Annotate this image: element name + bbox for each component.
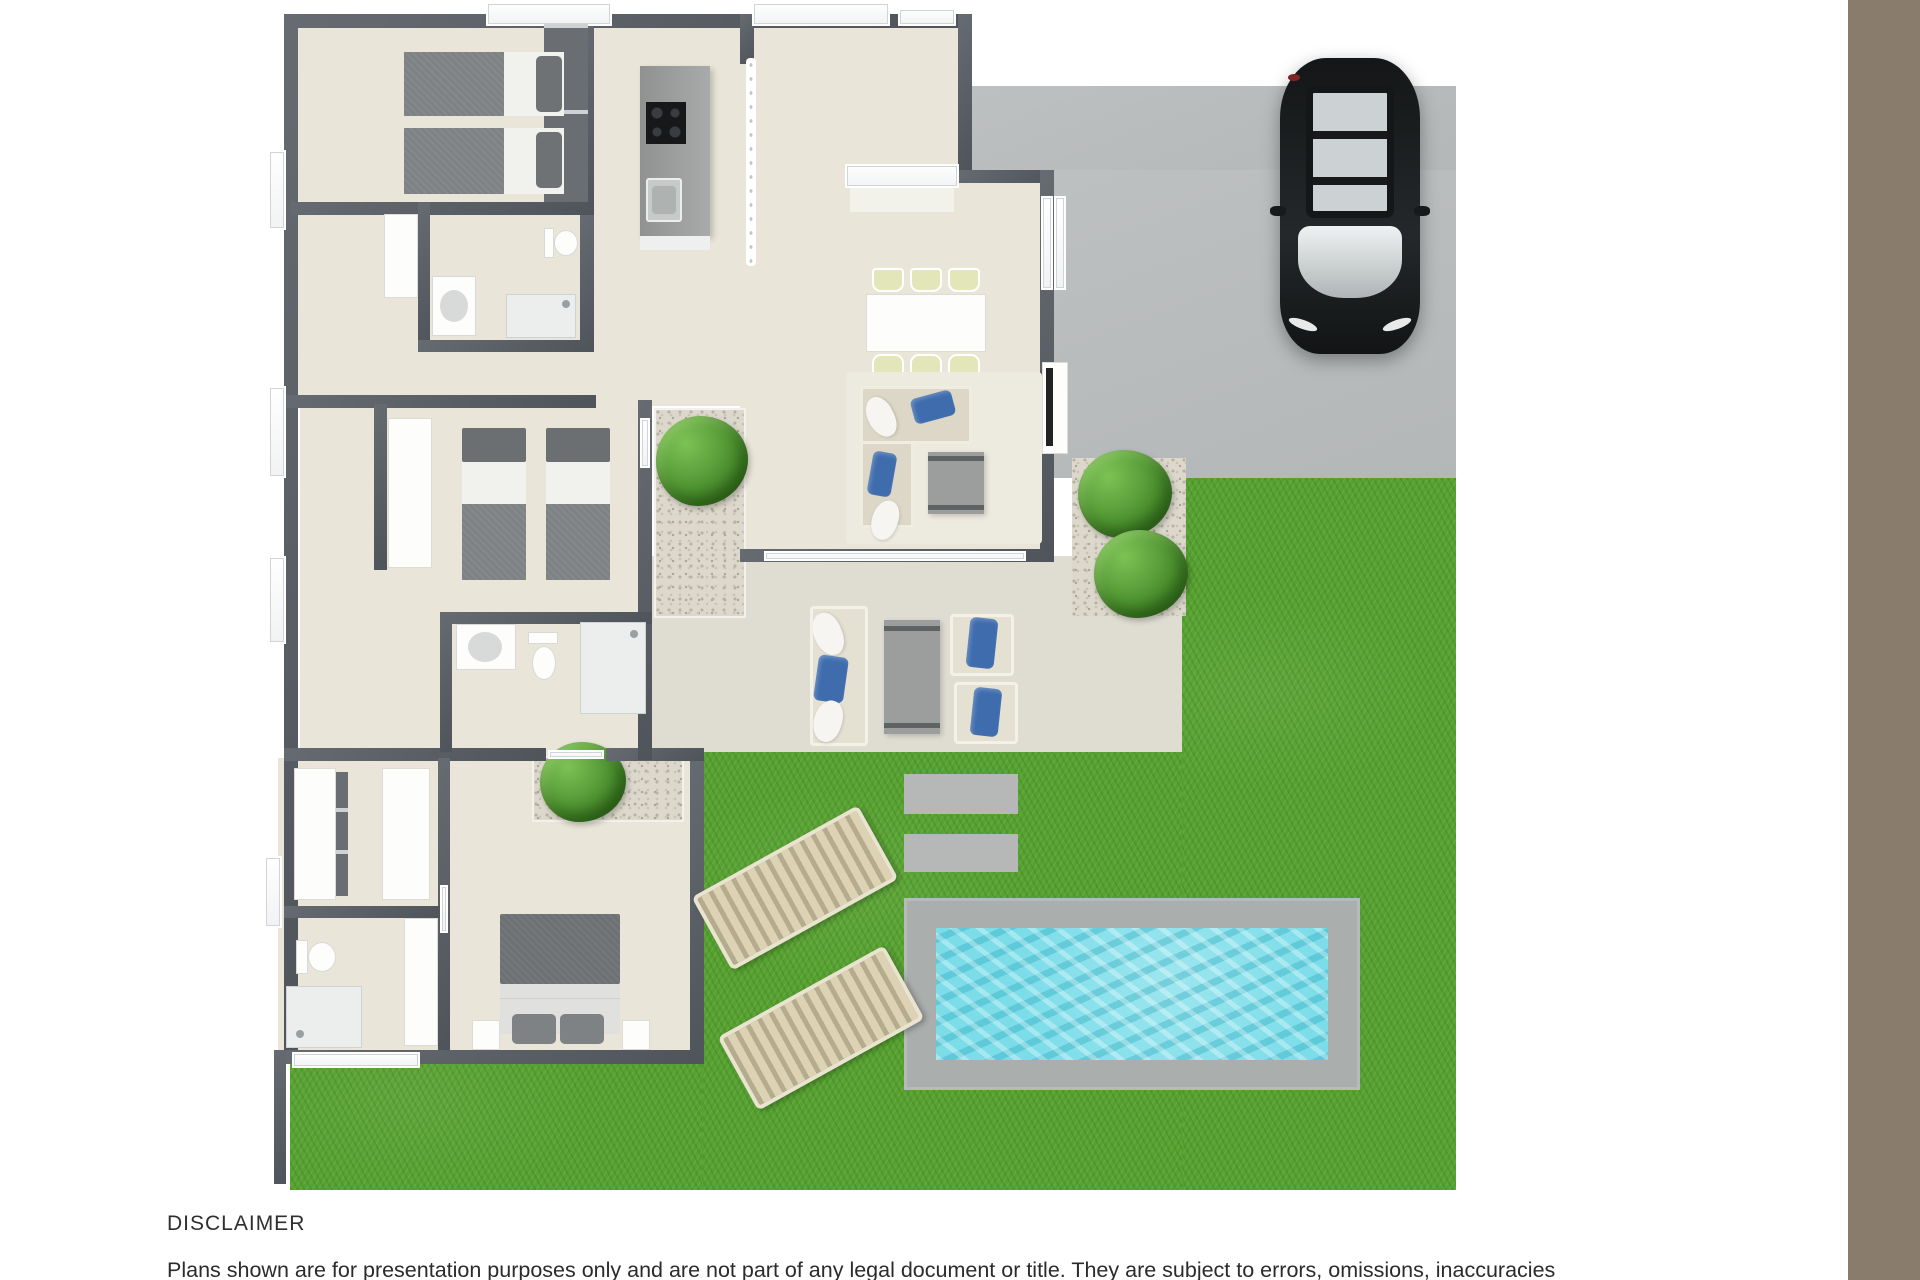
bed4-headboard bbox=[546, 428, 610, 462]
window-left-2 bbox=[268, 386, 286, 478]
outdoor-armchair2-cushion bbox=[970, 687, 1003, 738]
window-left-1 bbox=[268, 150, 286, 230]
bed4-sheet bbox=[546, 462, 610, 504]
window-top-2 bbox=[752, 2, 890, 26]
robe-wardrobe-1 bbox=[294, 768, 336, 900]
master-bed-cushion-1 bbox=[512, 1014, 556, 1044]
car-taillight-left bbox=[1288, 74, 1300, 81]
window-master-bottom bbox=[292, 1052, 420, 1068]
door-master-divider bbox=[440, 885, 448, 933]
bath1-basin bbox=[440, 290, 468, 322]
wall-robe-bath-divider bbox=[284, 906, 440, 918]
wall-bath1-bottom bbox=[418, 340, 594, 352]
sliding-door-patio bbox=[764, 551, 1026, 561]
outdoor-armchair1-cushion bbox=[965, 617, 998, 670]
robe-shelves bbox=[336, 772, 348, 896]
dining-table bbox=[866, 294, 986, 352]
paving-pad-2 bbox=[904, 834, 1018, 872]
disclaimer-title: DISCLAIMER bbox=[167, 1212, 305, 1236]
door-hall-master bbox=[548, 750, 604, 759]
bed3-headboard bbox=[462, 428, 526, 462]
kitchen-sink-basin bbox=[652, 186, 676, 214]
coffee-table-edge-top bbox=[928, 456, 984, 461]
pool-water bbox=[936, 928, 1328, 1060]
tv bbox=[1046, 368, 1053, 446]
hall-closet bbox=[384, 214, 418, 298]
car-roof-glass bbox=[1306, 86, 1394, 218]
window-dining-sill bbox=[850, 188, 954, 212]
floor-plan-page: DISCLAIMER Plans shown are for presentat… bbox=[0, 0, 1920, 1280]
bath2-toilet-bowl bbox=[532, 646, 556, 680]
cooktop bbox=[646, 102, 686, 144]
ensuite-toilet-tank bbox=[296, 940, 308, 974]
bath2-toilet-tank bbox=[528, 632, 558, 644]
dining-chair-3 bbox=[948, 268, 980, 292]
outdoor-table bbox=[884, 620, 940, 734]
lawn-bottom-left bbox=[290, 1062, 702, 1190]
outdoor-table-edge-bottom bbox=[884, 723, 940, 728]
bedroom2-robe-interior bbox=[388, 418, 432, 568]
window-sill-east bbox=[1054, 196, 1066, 290]
wall-wingA-bottom bbox=[284, 395, 596, 408]
bed3-blanket bbox=[462, 504, 526, 580]
bath2-shower-head bbox=[630, 630, 638, 638]
nightstand-left bbox=[472, 1020, 500, 1050]
bed2-pillow bbox=[536, 132, 562, 188]
car-windshield bbox=[1298, 226, 1402, 298]
car bbox=[1280, 58, 1420, 354]
bed2-blanket bbox=[404, 128, 504, 194]
bed3-sheet bbox=[462, 462, 526, 504]
outdoor-cushion-blue-1 bbox=[813, 654, 849, 704]
dining-chair-2 bbox=[910, 268, 942, 292]
bath2-basin bbox=[468, 632, 502, 662]
entry-screen bbox=[746, 58, 756, 266]
nightstand-right bbox=[622, 1020, 650, 1050]
window-left-4 bbox=[264, 856, 282, 928]
dining-chair-1 bbox=[872, 268, 904, 292]
wall-wing-top-a bbox=[284, 748, 546, 761]
front-door bbox=[898, 8, 956, 26]
door-hall-bedroom2 bbox=[640, 418, 650, 468]
pool-surround bbox=[904, 898, 1360, 1090]
master-tall-cabinet bbox=[404, 918, 438, 1046]
paving-pad-1 bbox=[904, 774, 1018, 814]
bath1-toilet-tank bbox=[544, 228, 554, 258]
disclaimer-body: Plans shown are for presentation purpose… bbox=[167, 1258, 1767, 1280]
master-bed-cushion-2 bbox=[560, 1014, 604, 1044]
bed1-pillow bbox=[536, 56, 562, 112]
bed4-blanket bbox=[546, 504, 610, 580]
side-stripe bbox=[1848, 0, 1920, 1280]
bed1-blanket bbox=[404, 52, 504, 116]
ensuite-shower bbox=[286, 986, 362, 1048]
bath1-toilet-bowl bbox=[554, 230, 578, 256]
window-dining bbox=[845, 164, 959, 188]
wall-bath1-right bbox=[580, 215, 594, 352]
wall-entry-right bbox=[958, 14, 972, 174]
bath1-shower-head bbox=[562, 300, 570, 308]
car-mirror-left bbox=[1270, 206, 1286, 216]
kitchen-island-end bbox=[640, 236, 710, 250]
outdoor-table-edge-top bbox=[884, 626, 940, 631]
window-living-east bbox=[1041, 196, 1053, 290]
window-left-3 bbox=[268, 556, 286, 644]
car-mirror-right bbox=[1414, 206, 1430, 216]
wall-robe2 bbox=[374, 404, 387, 570]
ensuite-shower-head bbox=[296, 1030, 304, 1038]
robe-wardrobe-2 bbox=[382, 768, 430, 900]
wall-wing-top-b bbox=[606, 748, 704, 761]
coffee-table-edge-bottom bbox=[928, 505, 984, 510]
ensuite-toilet-bowl bbox=[308, 942, 336, 972]
wall-bath2-left bbox=[440, 612, 452, 752]
master-bed-headboard bbox=[500, 914, 620, 984]
wall-bed1-bottom bbox=[290, 202, 592, 215]
wall-bath1-left bbox=[418, 202, 430, 352]
window-top-1 bbox=[486, 2, 612, 26]
wall-boundary-left bbox=[274, 1050, 286, 1184]
